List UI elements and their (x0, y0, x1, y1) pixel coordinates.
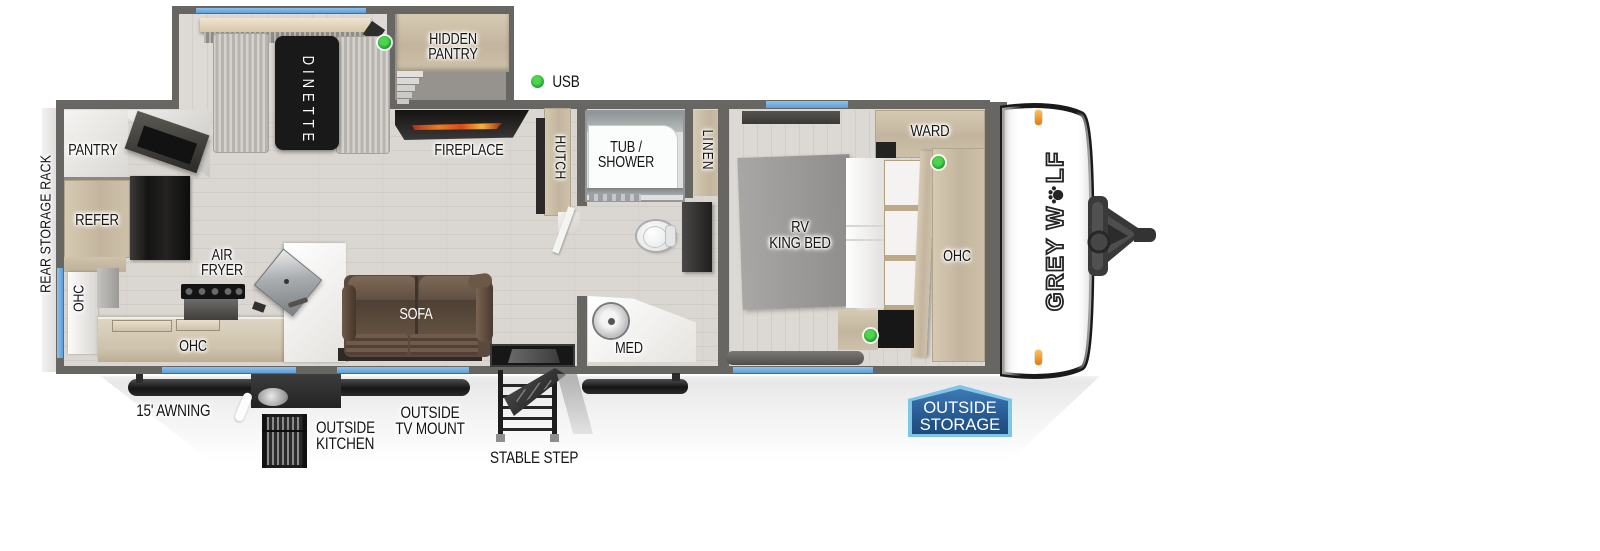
svg-text:OUTSIDE: OUTSIDE (923, 399, 996, 417)
svg-text:STORAGE: STORAGE (920, 416, 1000, 434)
